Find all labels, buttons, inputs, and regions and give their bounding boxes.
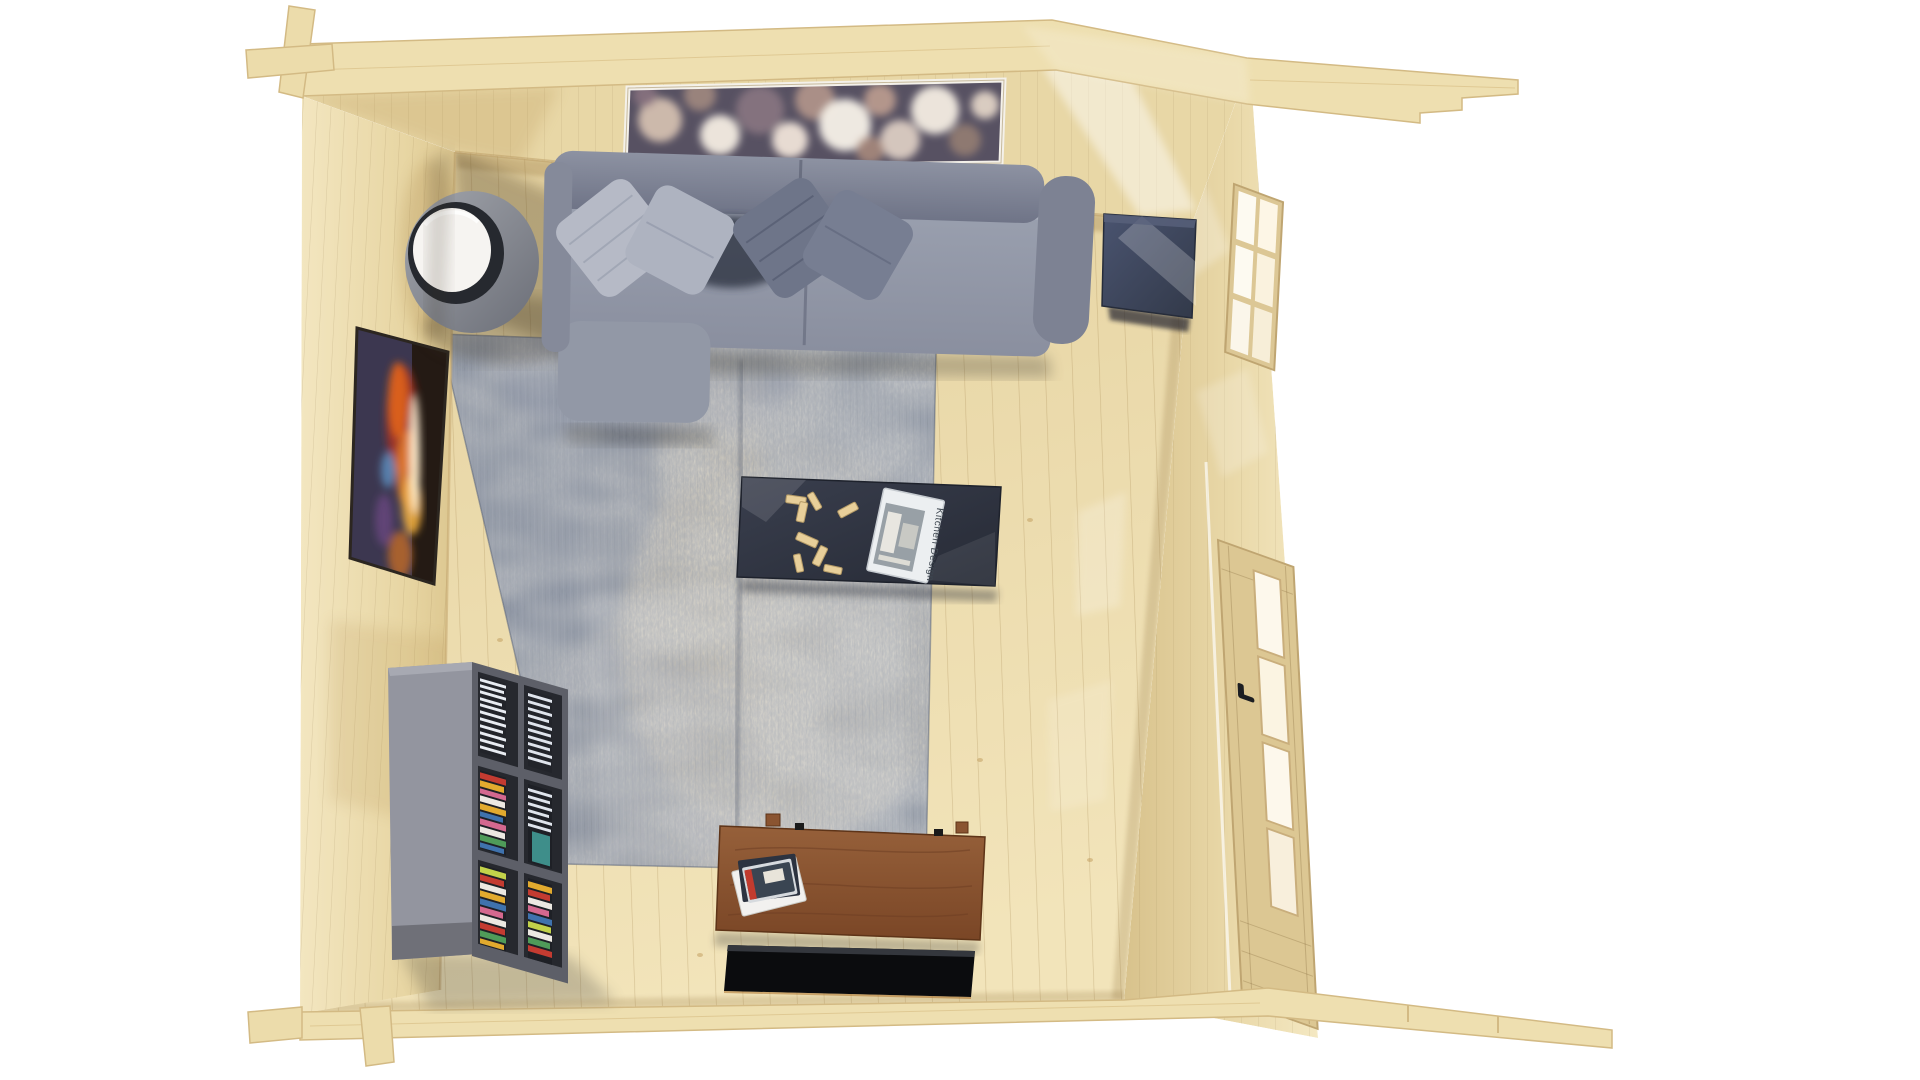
navy-side-cabinet [1102,214,1196,332]
upper-window [1225,184,1283,370]
sofa-chaise [557,321,711,424]
round-table-top [413,208,491,292]
render-canvas: Kitchen Design [0,0,1920,1080]
bookshelf-front [472,662,568,984]
tv-panel [724,945,975,999]
sofa-armrest-left [541,162,572,352]
cabin-top-view-render: Kitchen Design [0,0,1920,1080]
sideboard-knob [934,829,943,836]
sideboard-knob [795,823,804,830]
sofa-armrest-right [1032,175,1097,346]
bookshelf-top-panel [388,662,478,960]
